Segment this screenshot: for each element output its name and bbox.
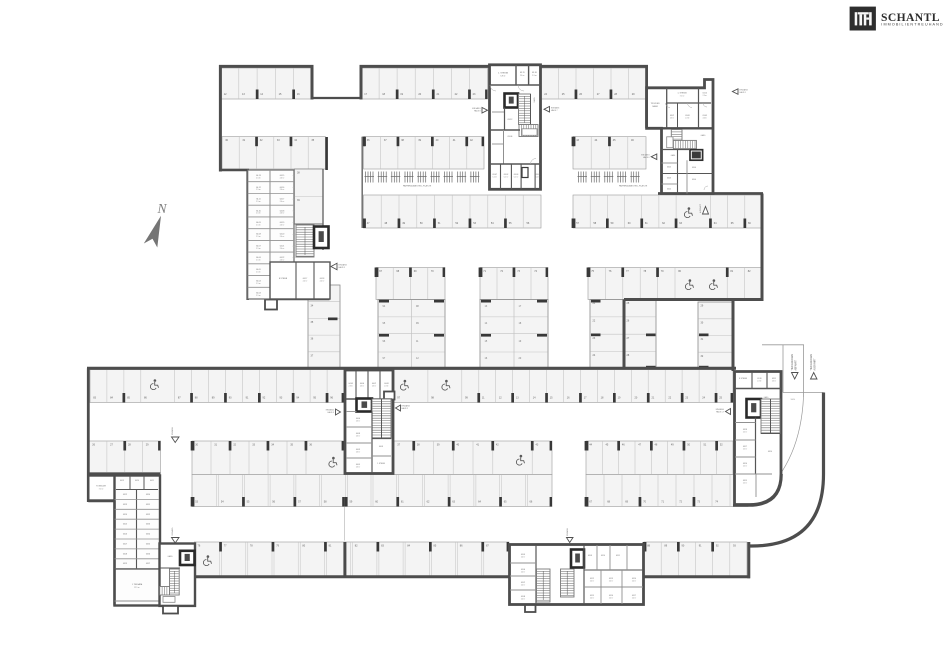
svg-text:63.10: 63.10 [757, 378, 761, 380]
svg-text:100%: 100% [791, 399, 796, 401]
svg-text:GANG: GANG [533, 97, 536, 103]
svg-text:63.32: 63.32 [146, 514, 150, 516]
svg-text:63.17: 63.17 [743, 446, 747, 448]
svg-text:65.15: 65.15 [590, 595, 594, 597]
svg-text:63.30: 63.30 [146, 494, 150, 496]
svg-text:63.36: 63.36 [146, 553, 150, 555]
svg-text:5.9 m²: 5.9 m² [500, 75, 506, 78]
svg-text:63.15: 63.15 [743, 480, 747, 482]
svg-text:63.02: 63.02 [504, 174, 509, 176]
svg-text:64.05: 64.05 [256, 269, 261, 271]
svg-text:64.21: 64.21 [280, 245, 285, 247]
svg-text:64.12: 64.12 [256, 187, 261, 189]
svg-text:64.17: 64.17 [280, 199, 285, 201]
svg-text:EINGANG: EINGANG [566, 528, 569, 536]
svg-text:2.3 m²: 2.3 m² [532, 74, 537, 77]
svg-text:64.19: 64.19 [120, 480, 124, 482]
svg-text:63.25: 63.25 [123, 524, 127, 526]
svg-text:63.10: 63.10 [532, 72, 537, 74]
svg-text:63.06: 63.06 [692, 167, 696, 169]
svg-text:65.06: 65.06 [521, 569, 525, 571]
svg-text:63.12: 63.12 [508, 119, 513, 121]
svg-text:EINGANG: EINGANG [171, 427, 174, 435]
svg-text:63.34: 63.34 [146, 534, 150, 536]
svg-text:63.22: 63.22 [123, 494, 127, 496]
svg-text:63.03: 63.03 [667, 178, 671, 180]
svg-text:64.18: 64.18 [320, 278, 325, 280]
svg-text:63.09: 63.09 [703, 115, 707, 117]
svg-text:N: N [157, 201, 168, 216]
svg-text:63.27: 63.27 [123, 544, 127, 546]
svg-text:65.12: 65.12 [590, 578, 594, 580]
svg-text:AUSFAHRT: AUSFAHRT [699, 204, 702, 213]
svg-text:64.07: 64.07 [256, 245, 261, 247]
svg-text:63.31: 63.31 [146, 504, 150, 506]
svg-text:63.10: 63.10 [703, 93, 707, 95]
svg-text:63.16: 63.16 [743, 463, 747, 465]
svg-text:63.07: 63.07 [670, 115, 674, 117]
svg-text:64.04: 64.04 [356, 418, 360, 420]
svg-text:64.18: 64.18 [280, 210, 285, 212]
svg-text:64.07: 64.07 [372, 383, 376, 385]
svg-text:HAUS 3: HAUS 3 [328, 411, 335, 414]
svg-text:1. STEIGB: 1. STEIGB [377, 463, 385, 465]
svg-text:HAUS 2: HAUS 2 [402, 407, 409, 410]
svg-text:63.33: 63.33 [146, 524, 150, 526]
svg-text:64.04: 64.04 [256, 281, 261, 283]
svg-text:63.11: 63.11 [772, 378, 776, 380]
svg-text:65.17: 65.17 [632, 595, 636, 597]
svg-text:63.05: 63.05 [667, 167, 671, 169]
svg-text:64.03: 64.03 [256, 292, 261, 294]
svg-text:FAHRRADABSTELLPLÄTZE: FAHRRADABSTELLPLÄTZE [619, 185, 648, 188]
svg-text:63.04: 63.04 [692, 179, 696, 181]
svg-text:ABFAHRT: ABFAHRT [794, 359, 797, 370]
svg-text:65.11: 65.11 [616, 555, 620, 557]
svg-text:63.24: 63.24 [123, 514, 127, 516]
svg-text:EINGANG: EINGANG [171, 527, 174, 535]
svg-text:1. STEIGB: 1. STEIGB [498, 73, 509, 75]
svg-text:63.26: 63.26 [123, 534, 127, 536]
svg-text:64.02: 64.02 [356, 449, 360, 451]
svg-text:64.21: 64.21 [150, 480, 154, 482]
svg-text:2.3 m²: 2.3 m² [520, 74, 525, 77]
svg-text:HAUS 1.7: HAUS 1.7 [716, 411, 724, 414]
svg-text:TG KELLER: TG KELLER [96, 486, 107, 488]
svg-text:65.16: 65.16 [609, 595, 613, 597]
svg-text:64.22: 64.22 [280, 257, 285, 259]
svg-text:64.17: 64.17 [303, 278, 308, 280]
svg-text:HAUS 8: HAUS 8 [474, 109, 481, 112]
svg-text:64.10: 64.10 [256, 210, 261, 212]
svg-text:7.1 m²: 7.1 m² [99, 488, 104, 491]
svg-text:64.20: 64.20 [280, 234, 285, 236]
svg-text:64.20: 64.20 [135, 480, 139, 482]
svg-text:AUSFAHRT: AUSFAHRT [813, 358, 816, 371]
svg-text:63.35: 63.35 [146, 544, 150, 546]
svg-text:65.13: 65.13 [609, 578, 613, 580]
svg-text:1. TIEFGARA: 1. TIEFGARA [132, 583, 143, 586]
svg-text:64.06: 64.06 [256, 257, 261, 259]
svg-text:63.37: 63.37 [146, 563, 150, 565]
svg-text:HAUS 1: HAUS 1 [740, 91, 747, 94]
svg-text:GANG: GANG [168, 555, 174, 558]
svg-text:65.09: 65.09 [588, 555, 592, 557]
svg-text:HAUS 5: HAUS 5 [339, 266, 346, 269]
svg-text:63.02: 63.02 [667, 189, 671, 191]
svg-text:64.08: 64.08 [256, 234, 261, 236]
svg-text:HAUS 7: HAUS 7 [551, 109, 558, 112]
svg-text:63.23: 63.23 [123, 504, 127, 506]
svg-text:63.07: 63.07 [493, 174, 498, 176]
svg-text:65.14: 65.14 [632, 578, 636, 580]
svg-text:64.15: 64.15 [280, 175, 285, 177]
svg-text:TIEFGARAGEN: TIEFGARAGEN [810, 354, 813, 371]
svg-text:FAHRRADABSTELLPLÄTZE: FAHRRADABSTELLPLÄTZE [403, 185, 432, 188]
svg-text:TIEFGARAGEN: TIEFGARAGEN [791, 354, 794, 371]
svg-text:64.11: 64.11 [256, 199, 260, 201]
svg-text:64.09: 64.09 [256, 222, 261, 224]
svg-text:7.1 m²: 7.1 m² [680, 95, 685, 98]
svg-text:64.03: 64.03 [356, 433, 360, 435]
svg-text:63.03: 63.03 [514, 174, 519, 176]
svg-text:64.13: 64.13 [256, 175, 261, 177]
svg-text:64.08: 64.08 [384, 383, 388, 385]
svg-text:64.19: 64.19 [280, 222, 285, 224]
svg-text:64.06: 64.06 [360, 383, 364, 385]
svg-text:63.29: 63.29 [123, 563, 127, 565]
svg-text:65.07: 65.07 [521, 582, 525, 584]
svg-text:E STEIGB: E STEIGB [279, 278, 288, 280]
svg-text:64.09: 64.09 [379, 446, 383, 448]
svg-text:1. STEIGB: 1. STEIGB [677, 93, 687, 95]
svg-text:TROCKEN: TROCKEN [651, 103, 660, 105]
svg-text:HAUS 6: HAUS 6 [643, 156, 650, 159]
svg-text:E STEIGB: E STEIGB [739, 378, 748, 380]
svg-text:65.08: 65.08 [521, 596, 525, 598]
svg-text:63.11: 63.11 [520, 72, 525, 74]
svg-text:65.05: 65.05 [521, 554, 525, 556]
svg-text:64.01: 64.01 [356, 464, 360, 466]
svg-text:63.28: 63.28 [123, 553, 127, 555]
svg-text:63.14: 63.14 [768, 451, 772, 453]
svg-text:63.18: 63.18 [743, 429, 747, 431]
svg-text:65.10: 65.10 [601, 555, 605, 557]
svg-text:IMMOBILIENTREUHAND: IMMOBILIENTREUHAND [881, 22, 943, 26]
svg-text:RAUM: RAUM [652, 105, 658, 108]
svg-text:64.16: 64.16 [280, 187, 285, 189]
svg-text:63.04: 63.04 [536, 174, 541, 176]
svg-text:64.05: 64.05 [349, 383, 353, 385]
svg-text:63.06: 63.06 [508, 136, 513, 138]
svg-text:63.08: 63.08 [685, 115, 689, 117]
